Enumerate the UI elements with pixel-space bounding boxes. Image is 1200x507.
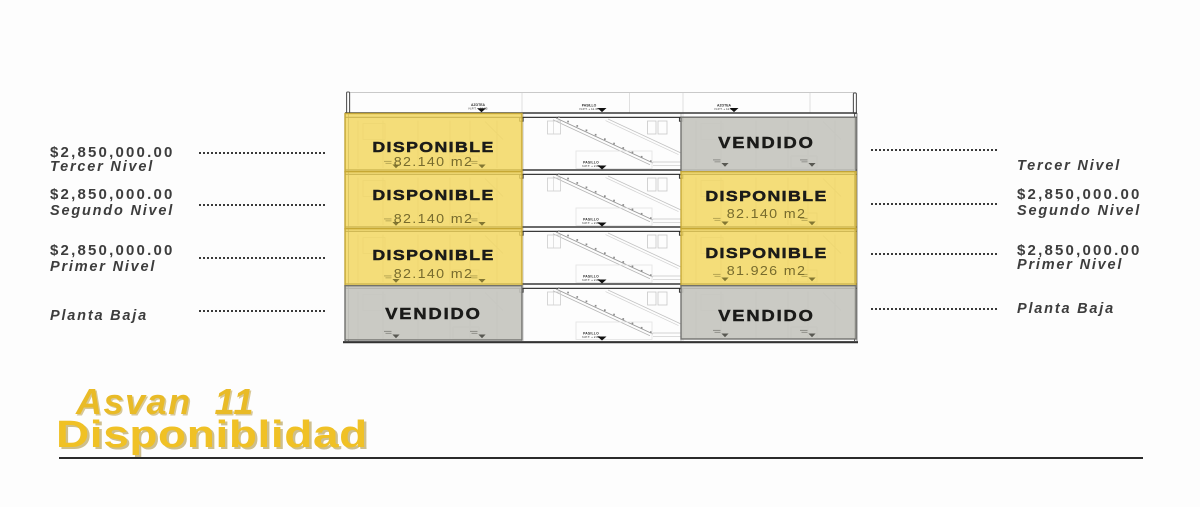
svg-text:N.P.T. + 2.88: N.P.T. + 2.88 xyxy=(582,164,600,168)
svg-text:N.P.T. + 2.88: N.P.T. + 2.88 xyxy=(582,221,600,225)
svg-text:N.P.T. + 11.35: N.P.T. + 11.35 xyxy=(579,107,598,111)
svg-text:N.P.T. + 2.88: N.P.T. + 2.88 xyxy=(582,278,600,282)
svg-text:N.P.T. + 2.88: N.P.T. + 2.88 xyxy=(582,335,600,339)
